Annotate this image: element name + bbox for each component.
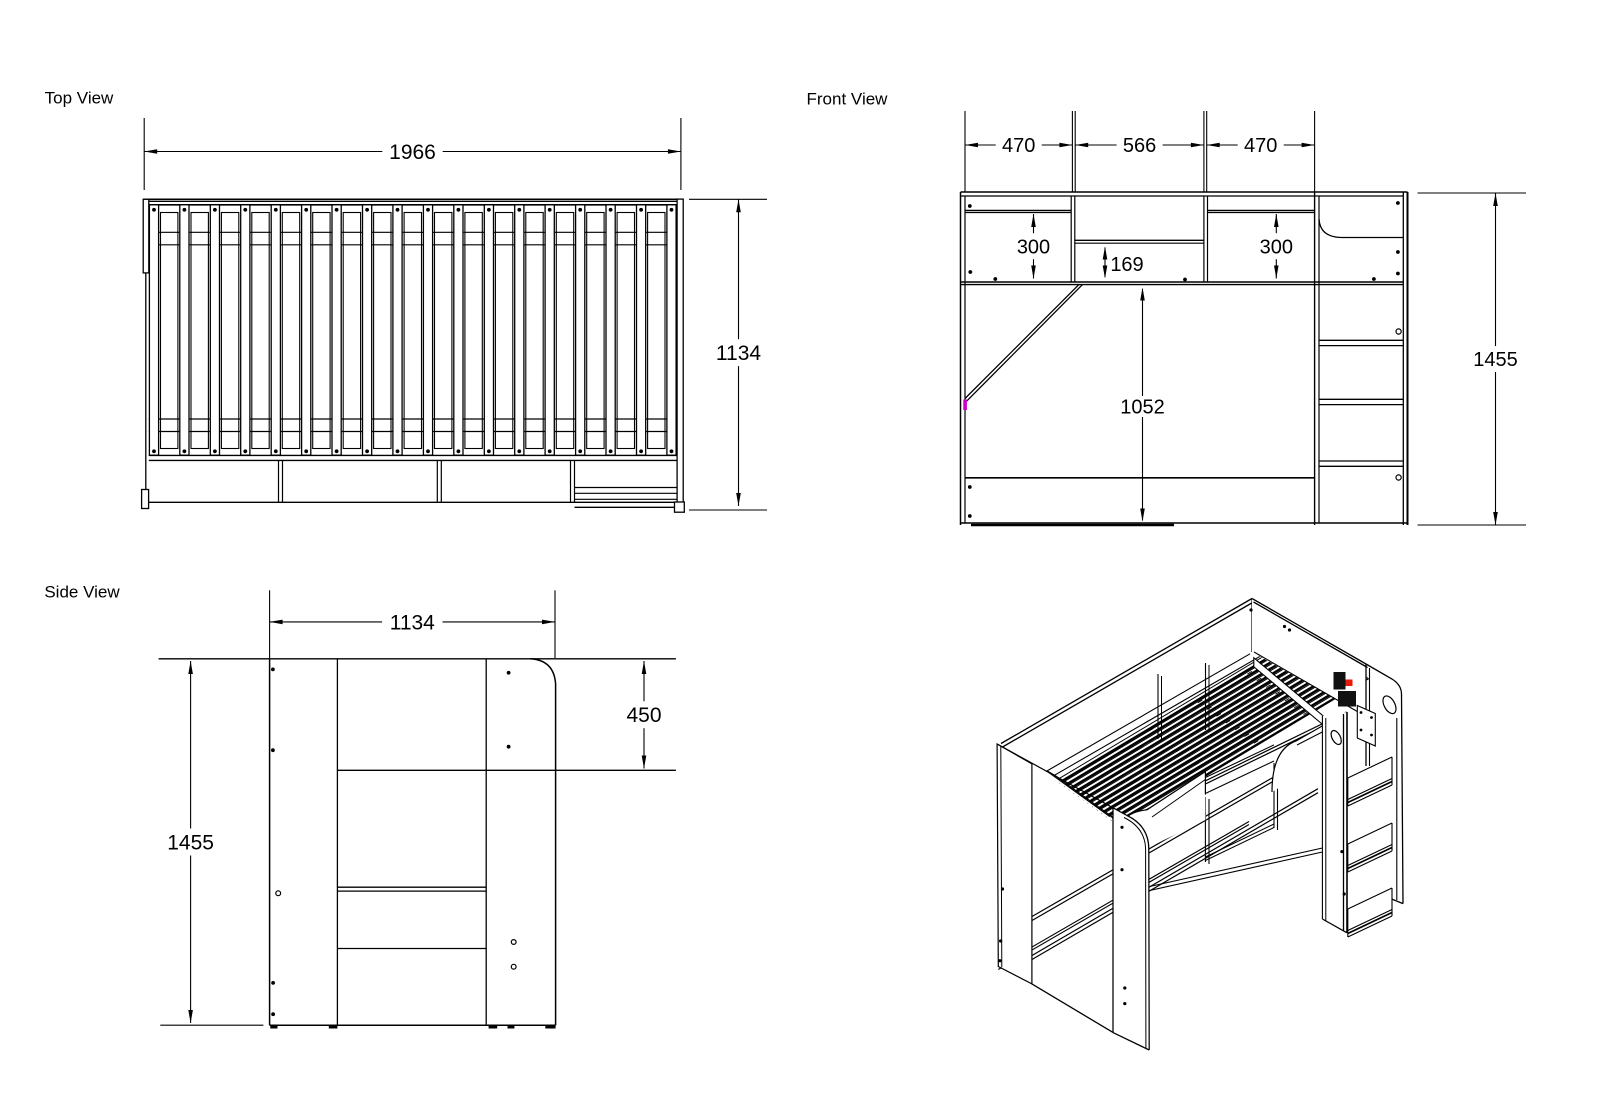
svg-text:300: 300 (1017, 236, 1050, 258)
svg-text:169: 169 (1110, 254, 1143, 276)
svg-text:470: 470 (1002, 135, 1035, 157)
svg-text:1052: 1052 (1120, 396, 1165, 418)
svg-text:Side View: Side View (44, 583, 120, 602)
svg-text:470: 470 (1244, 135, 1277, 157)
svg-text:566: 566 (1123, 135, 1156, 157)
svg-text:1134: 1134 (716, 342, 761, 365)
svg-text:1134: 1134 (390, 611, 435, 634)
svg-text:300: 300 (1260, 236, 1293, 258)
svg-text:Front View: Front View (807, 89, 889, 108)
svg-text:1966: 1966 (389, 141, 436, 164)
svg-text:450: 450 (626, 704, 661, 727)
svg-text:1455: 1455 (167, 832, 214, 855)
svg-text:1455: 1455 (1473, 349, 1518, 371)
svg-text:Top View: Top View (45, 89, 114, 108)
